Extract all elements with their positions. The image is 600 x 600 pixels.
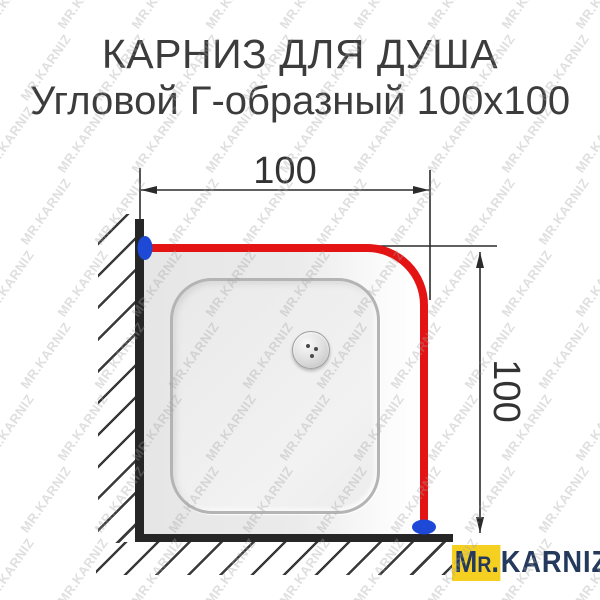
arrow-right-icon [413, 186, 429, 194]
rod-mount-top-icon [138, 236, 153, 260]
brand-logo: Mr. KARNIZ [452, 545, 600, 581]
arrow-down-icon [476, 517, 484, 533]
brand-logo-prefix: Mr. [452, 545, 501, 581]
product-image: КАРНИЗ ДЛЯ ДУША Угловой Г-образный 100х1… [0, 0, 600, 600]
dimension-overlay: 100 100 [0, 0, 600, 600]
brand-logo-name: KARNIZ [501, 545, 600, 577]
height-dimension-label: 100 [485, 359, 527, 422]
arrow-left-icon [141, 186, 157, 194]
width-dimension-label: 100 [253, 150, 316, 192]
rod-mount-bottom-icon [412, 520, 436, 535]
curtain-rod [149, 248, 424, 524]
arrow-up-icon [476, 252, 484, 268]
